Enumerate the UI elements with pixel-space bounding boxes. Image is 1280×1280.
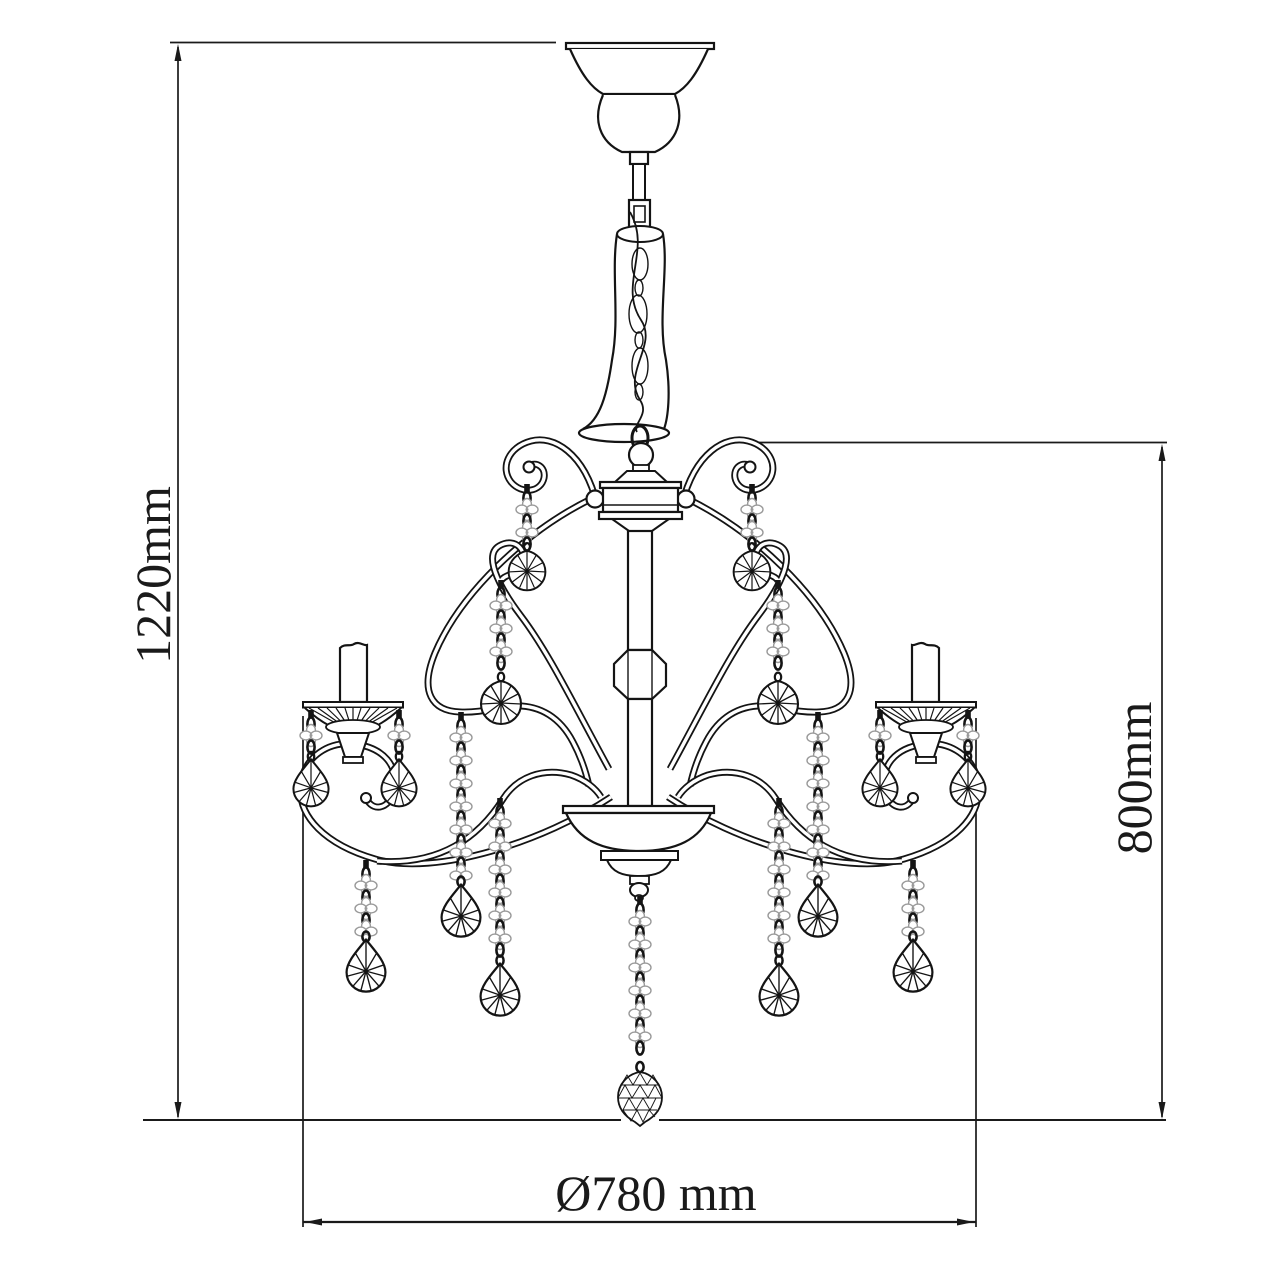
right-arm-assembly bbox=[668, 440, 979, 864]
dim-diameter-label: Ø780 mm bbox=[555, 1165, 757, 1221]
dim-overall-height-label: 1220mm bbox=[125, 486, 181, 664]
hub-drum bbox=[587, 482, 695, 531]
dim-fixture-height-label: 800mm bbox=[1106, 702, 1162, 855]
bottom-bowl bbox=[563, 806, 714, 901]
left-arm-assembly bbox=[300, 440, 611, 864]
dimension-overall-height: 1220mm bbox=[125, 43, 556, 1120]
chain-sleeve bbox=[579, 212, 669, 442]
central-column bbox=[614, 531, 666, 806]
suspension bbox=[579, 164, 669, 482]
technical-drawing-page: 1220mm 800mm Ø780 mm bbox=[0, 0, 1280, 1280]
chandelier-dimension-drawing: 1220mm 800mm Ø780 mm bbox=[0, 0, 1280, 1280]
canopy bbox=[566, 43, 714, 164]
candle-socket bbox=[303, 643, 403, 763]
